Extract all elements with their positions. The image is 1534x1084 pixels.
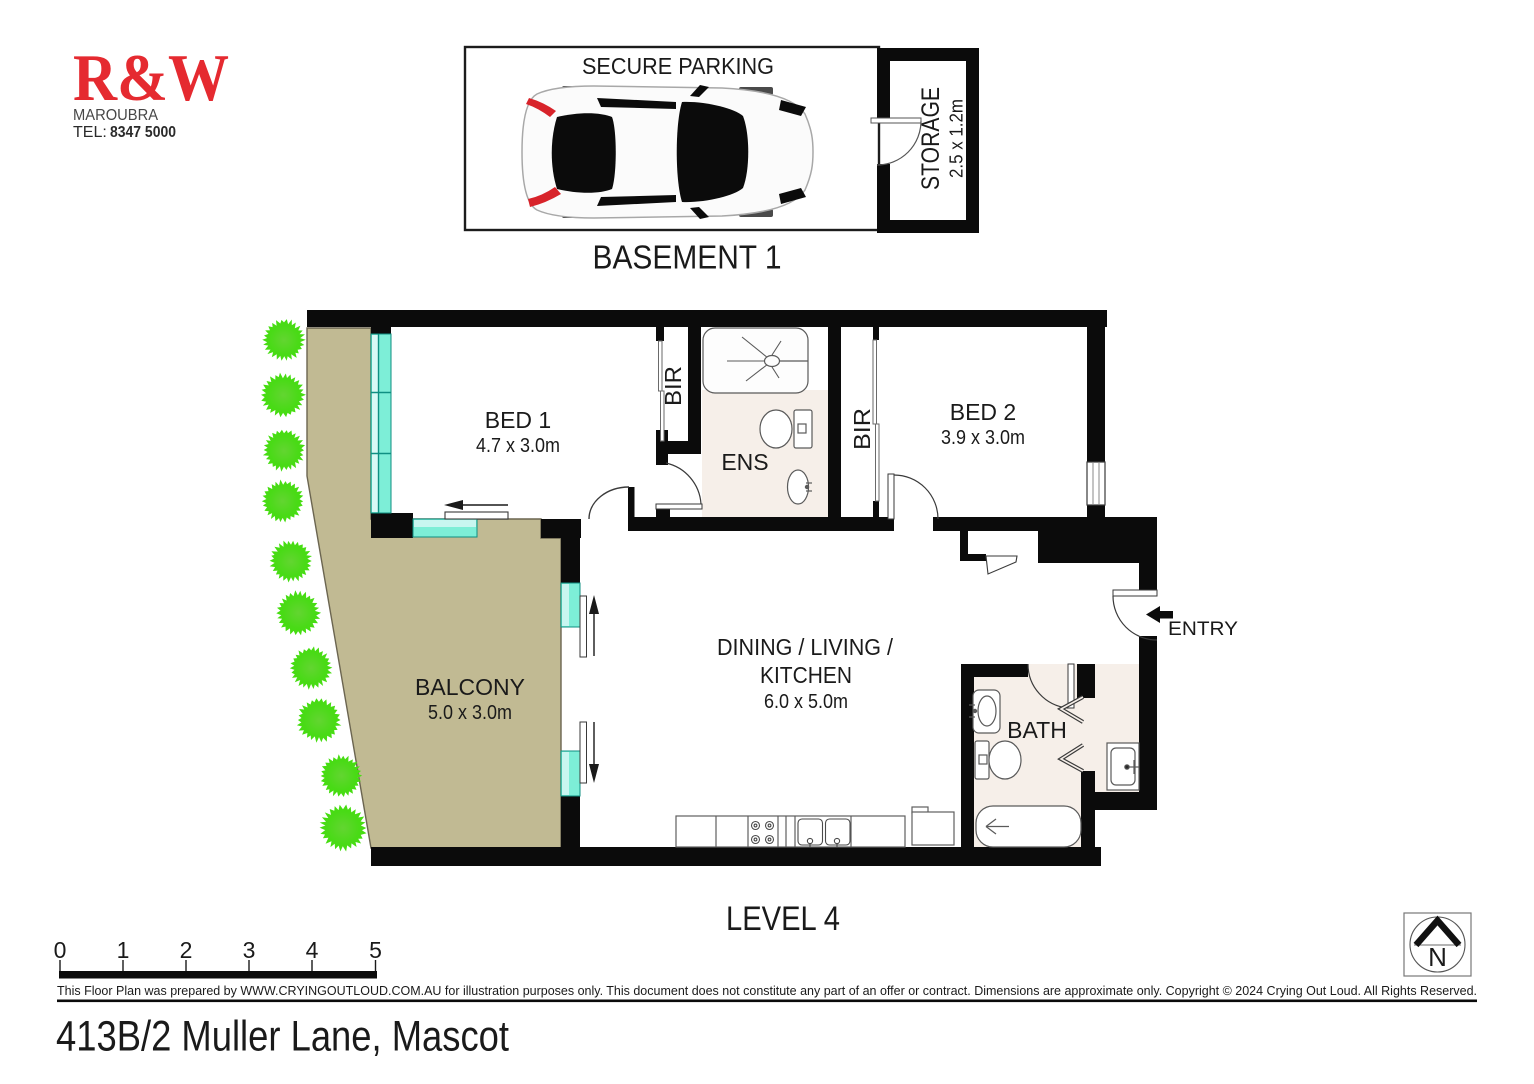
- svg-text:LEVEL 4: LEVEL 4: [726, 900, 840, 938]
- svg-text:KITCHEN: KITCHEN: [760, 662, 852, 688]
- svg-text:BALCONY: BALCONY: [415, 674, 525, 700]
- svg-text:BATH: BATH: [1007, 717, 1067, 743]
- svg-text:MAROUBRA: MAROUBRA: [73, 107, 158, 124]
- svg-text:BIR: BIR: [660, 366, 686, 406]
- svg-text:STORAGE: STORAGE: [917, 87, 945, 190]
- svg-text:This Floor Plan was prepared b: This Floor Plan was prepared by WWW.CRYI…: [57, 983, 1477, 998]
- svg-text:6.0 x 5.0m: 6.0 x 5.0m: [764, 691, 848, 713]
- svg-text:BED 1: BED 1: [485, 407, 551, 433]
- svg-text:4.7 x 3.0m: 4.7 x 3.0m: [476, 435, 560, 457]
- svg-text:2.5 x 1.2m: 2.5 x 1.2m: [946, 99, 967, 178]
- svg-text:3.9 x 3.0m: 3.9 x 3.0m: [941, 427, 1025, 449]
- svg-text:SECURE PARKING: SECURE PARKING: [582, 53, 774, 79]
- svg-text:ENS: ENS: [721, 449, 768, 475]
- svg-text:2: 2: [180, 937, 193, 963]
- svg-text:BASEMENT 1: BASEMENT 1: [593, 239, 782, 276]
- svg-text:BIR: BIR: [849, 408, 875, 450]
- svg-text:BED 2: BED 2: [950, 399, 1016, 425]
- svg-text:ENTRY: ENTRY: [1168, 619, 1238, 640]
- svg-text:4: 4: [306, 937, 319, 963]
- svg-text:5.0 x 3.0m: 5.0 x 3.0m: [428, 702, 512, 724]
- svg-text:R&W: R&W: [73, 41, 229, 115]
- svg-text:413B/2 Muller Lane, Mascot: 413B/2 Muller Lane, Mascot: [56, 1013, 509, 1061]
- svg-text:TEL:: TEL:: [73, 124, 107, 141]
- svg-text:0: 0: [54, 937, 67, 963]
- svg-text:3: 3: [243, 937, 256, 963]
- svg-text:8347 5000: 8347 5000: [110, 124, 176, 141]
- svg-text:1: 1: [117, 937, 130, 963]
- svg-text:N: N: [1428, 942, 1447, 972]
- svg-text:DINING / LIVING /: DINING / LIVING /: [717, 634, 894, 660]
- svg-text:5: 5: [369, 937, 382, 963]
